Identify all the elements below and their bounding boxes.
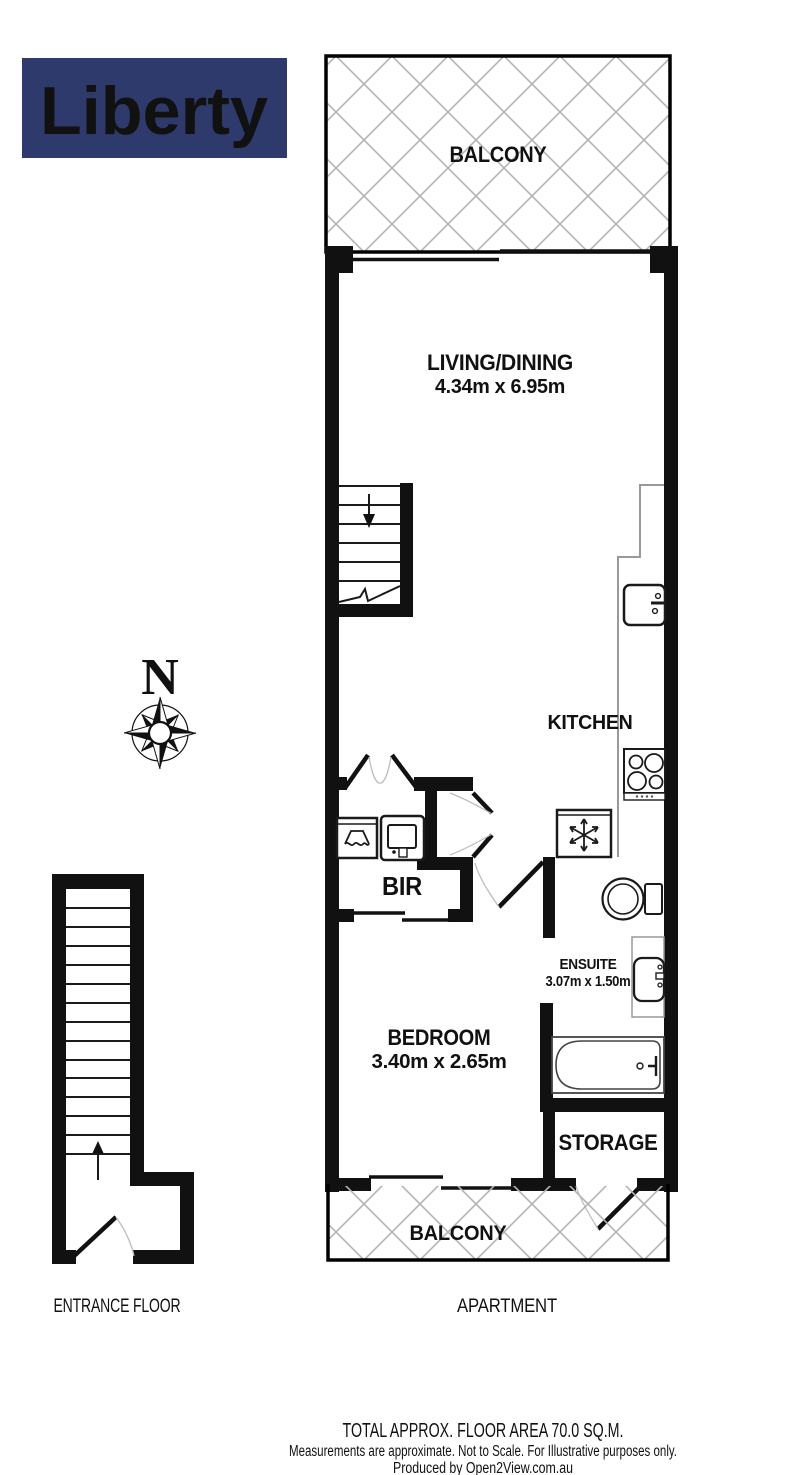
laundry-closet [335,755,492,870]
entrance-up-arrow-head [93,1141,104,1153]
bath-drain [637,1063,643,1069]
cooktop-knob [641,795,643,797]
basin-tap-knob [658,965,662,969]
bifold-door-leaf-right [392,755,416,787]
toilet [603,879,663,920]
bathtub [552,1037,664,1093]
toilet-cistern [645,884,662,914]
wall-top-right-stub [650,246,678,273]
bedroom-dims: 3.40m x 2.65m [372,1051,507,1073]
bifold-door-arc [369,757,391,783]
washing-machine [381,816,424,860]
sink-tap-knob [653,609,658,614]
toilet-bowl-inner [608,884,638,914]
logo-text: Liberty [40,73,268,149]
ensuite-left-wall-lower [540,1003,553,1110]
balcony-top-label: BALCONY [450,142,548,167]
compass-rose: N [124,649,196,769]
balcony-bottom-label: BALCONY [410,1222,507,1245]
entrance-door-leaf [73,1217,116,1257]
ensuite-storage-wall [540,1098,678,1112]
bedroom: BEDROOM 3.40m x 2.65m [325,1025,568,1191]
washer-knob [392,850,396,854]
ensuite-label: ENSUITE [560,956,617,973]
cooktop-controls [624,793,665,800]
footer-producer: Produced by Open2View.com.au [393,1460,573,1475]
basin-tap-knob [658,983,662,987]
entrance-floor [52,874,194,1264]
balcony-top: BALCONY [326,56,670,252]
dryer [337,818,377,858]
entrance-bottom-stub-left [52,1250,76,1264]
kitchen: KITCHEN [548,485,666,857]
fridge [557,810,611,857]
bir-bottom-stub-right [448,909,473,922]
balcony-bottom: BALCONY [328,1184,668,1260]
entrance-wall-left [52,874,66,1264]
ensuite: ENSUITE 3.07m x 1.50m [540,879,678,1113]
cooktop [624,749,665,800]
burner-small-2 [650,776,663,789]
kitchen-sink [624,585,665,625]
floorplan-canvas: Liberty BALCONY LIVING/DINING 4.34m x 6.… [0,0,800,1475]
internal-stairs [339,483,413,617]
bir-bottom-stub-left [339,909,354,922]
wall-left [325,246,339,1192]
stair-break-line [339,586,400,602]
basin-tap [656,973,664,979]
kitchen-counter-edge [618,485,664,857]
closet-wall-vertical [425,777,437,870]
bedroom-door-arc [475,863,499,907]
vanity-basin [632,937,664,1017]
cooktop-knob [636,795,638,797]
burner-small-1 [630,756,643,769]
stair-down-arrow-head [363,514,375,528]
closet-wall-top [414,777,473,791]
ensuite-dims: 3.07m x 1.50m [546,973,631,990]
wall-top-left-stub [325,246,353,273]
living-dining-room: LIVING/DINING 4.34m x 6.95m [427,350,573,398]
entrance-floor-caption: ENTRANCE FLOOR [54,1296,181,1317]
bifold-door-leaf-left [345,755,368,788]
kitchen-label: KITCHEN [548,712,633,734]
bir-label: BIR [382,871,422,901]
bedroom-door-leaf [499,862,543,907]
entrance-door-arc [116,1217,134,1256]
cooktop-knob [646,795,648,797]
wall-right [664,246,678,1192]
footer-total-area: TOTAL APPROX. FLOOR AREA 70.0 SQ.M. [343,1420,624,1442]
cooktop-knob [651,795,653,797]
burner-large-1 [645,754,663,772]
plan-captions: ENTRANCE FLOOR APARTMENT [54,1296,558,1317]
closet-door-leaf-top [473,793,492,813]
living-dining-dims: 4.34m x 6.95m [435,376,565,398]
apartment-caption: APARTMENT [457,1296,558,1317]
compass-center [149,722,171,744]
footer: TOTAL APPROX. FLOOR AREA 70.0 SQ.M. Meas… [289,1420,677,1475]
bedroom-label: BEDROOM [388,1025,491,1050]
footer-disclaimer: Measurements are approximate. Not to Sca… [289,1443,677,1460]
ensuite-left-wall-upper [543,857,555,938]
stair-right-wall [400,483,413,617]
storage-label: STORAGE [559,1130,658,1155]
entrance-stair-treads [66,908,130,1154]
closet-door-leaf-bottom [473,835,492,857]
entrance-bottom-stub-right [133,1250,194,1264]
stair-bottom-wall [339,604,413,617]
living-dining-label: LIVING/DINING [427,350,573,375]
sink-tap-knob-2 [656,594,661,599]
logo: Liberty [22,58,287,158]
burner-large-2 [628,772,646,790]
entrance-stair-right-wall [130,874,144,1186]
bedroom-door [475,857,555,938]
bath-tub [556,1041,660,1089]
